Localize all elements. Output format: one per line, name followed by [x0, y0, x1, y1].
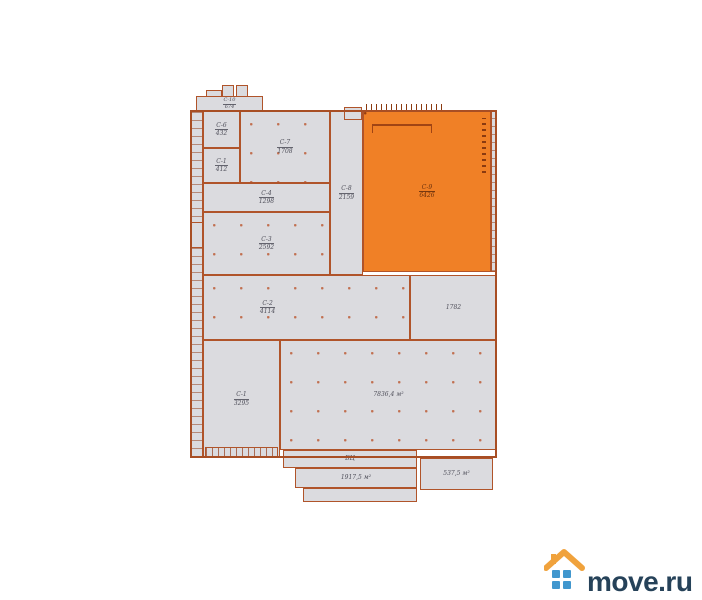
room-label: 7836,4 м²: [373, 391, 403, 399]
room-label: БЦ: [345, 455, 355, 463]
room-bottom-ledge: [303, 488, 417, 502]
room-c8: С-82159: [330, 111, 363, 275]
dimension-tick-marks: [366, 104, 446, 112]
room-label: С-41298: [259, 190, 274, 206]
window-icon: [552, 570, 571, 589]
room-c6: С-6432: [203, 111, 240, 148]
room-c4: С-41298: [203, 183, 330, 212]
room-1917: 1917,5 м²: [295, 468, 417, 488]
room-label: С-1412: [215, 158, 227, 174]
crane-beam: [372, 124, 432, 133]
room-c7: С-71708: [240, 111, 330, 183]
left-corridor-strip: [190, 110, 203, 458]
room-c1-lower: С-13295: [203, 340, 280, 458]
room-label: С-10674: [223, 98, 237, 110]
right-edge-strip: [491, 111, 497, 272]
wall-niche: [344, 107, 362, 120]
floorplan-canvas: С-10674 С-6432 С-1412 С-71708 С-41298 С-…: [0, 0, 702, 600]
room-label: 1917,5 м²: [341, 474, 371, 482]
room-c9-highlighted: С-96426: [363, 111, 491, 272]
room-537: 537,5 м²: [420, 458, 493, 490]
room-label: 537,5 м²: [443, 470, 469, 478]
room-label: С-13295: [234, 391, 249, 407]
logo-text: move.ru: [587, 566, 692, 597]
move-ru-logo: move.ru: [544, 546, 702, 600]
left-strip-closet: [191, 222, 203, 248]
room-label: 1782: [446, 304, 461, 312]
room-c3: С-32592: [203, 212, 330, 275]
main-hall: 7836,4 м²: [280, 340, 497, 450]
room-label: С-32592: [259, 236, 274, 252]
column-dash-marks: [482, 118, 486, 173]
room-c2: С-24114: [203, 275, 410, 340]
room-label: С-96426: [419, 184, 434, 200]
room-label: С-82159: [339, 185, 354, 201]
room-label: С-71708: [277, 139, 292, 155]
room-1782: 1782: [410, 275, 497, 340]
room-c10: С-10674: [196, 96, 263, 112]
room-bc: БЦ: [283, 450, 417, 468]
room-label: С-6432: [215, 122, 227, 138]
room-label: С-24114: [260, 300, 275, 316]
room-c1-upper: С-1412: [203, 148, 240, 183]
bottom-wall-rooms: [205, 447, 278, 458]
